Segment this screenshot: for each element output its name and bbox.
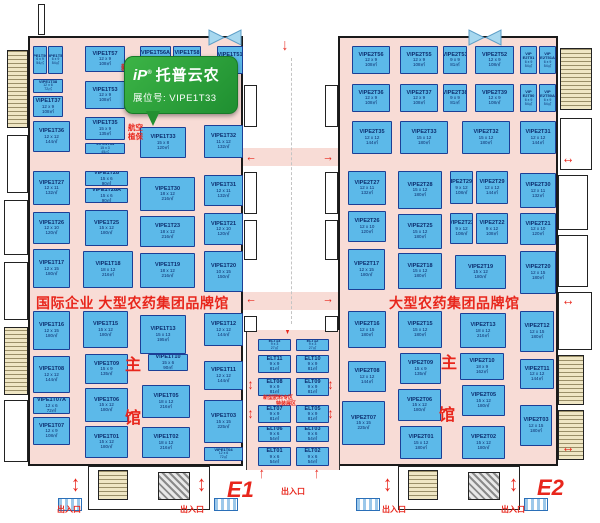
flagpole-structure xyxy=(38,4,45,35)
direction-arrow: ↕ xyxy=(328,377,334,391)
booth-vipe1t02[interactable]: VIPE1T0218 x 12216㎡ xyxy=(142,427,190,458)
booth-area-label: 108㎡ xyxy=(365,101,377,106)
direction-arrow: ↕ xyxy=(197,473,206,495)
booth-area-label: 216㎡ xyxy=(161,197,173,202)
booth-area-label: 54㎡ xyxy=(525,103,532,107)
booth-area-label: 81㎡ xyxy=(450,101,460,106)
booth-area-label: 108㎡ xyxy=(42,110,54,115)
booth-area-label: 180㎡ xyxy=(99,333,111,338)
booth-vipe2t05[interactable]: VIPE2T0515 x 12180㎡ xyxy=(462,385,505,416)
direction-arrow: ↕ xyxy=(71,473,80,495)
direction-arrow: → xyxy=(322,149,333,163)
booth-vipe1t28a[interactable]: VIPE1T28A15 x 690㎡ xyxy=(85,188,128,203)
booth-vipe2t07[interactable]: VIPE2T0715 x 15225㎡ xyxy=(342,401,385,445)
booth-vipe2t22[interactable]: VIPE2T229 x 12108㎡ xyxy=(476,213,508,244)
elt-zone-note-line2: 特装展区 xyxy=(276,400,296,407)
direction-arrow: ↔ xyxy=(562,151,575,167)
banner-booth-row: 展位号: VIPE1T33 xyxy=(133,90,231,104)
direction-arrow: ↔ xyxy=(562,293,575,309)
building-structure xyxy=(244,85,257,127)
booth-vipe1t31[interactable]: VIPE1T3112 x 11132㎡ xyxy=(204,175,243,206)
booth-vipe1t21[interactable]: VIPE1T2112 x 10120㎡ xyxy=(204,213,243,245)
booth-vipe2t01[interactable]: VIPE2T0115 x 12180㎡ xyxy=(400,426,442,459)
booth-vipe2t38[interactable]: VIPE2T389 x 981㎡ xyxy=(443,84,467,112)
booth-vipe1t28[interactable]: VIPE1T2815 x 690㎡ xyxy=(85,171,128,186)
booth-area-label: 144㎡ xyxy=(532,141,544,146)
booth-area-label: 180㎡ xyxy=(361,333,373,338)
booth-vipe1t53[interactable]: VIPE1T5312 x 9108㎡ xyxy=(85,81,125,109)
booth-vipe1t35[interactable]: VIPE1T3515 x 9135㎡ xyxy=(85,117,125,140)
booth-area-label: 216㎡ xyxy=(160,405,172,410)
booth-area-label: 108㎡ xyxy=(488,63,500,68)
booth-vipe1t37[interactable]: VIPE1T3712 x 9108㎡ xyxy=(33,96,63,117)
booth-vipe1t13[interactable]: VIPE1T1315 x 13195㎡ xyxy=(140,315,186,354)
booth-area-label: 81㎡ xyxy=(308,390,318,395)
booth-vipe2t55[interactable]: VIPE2T5512 x 9108㎡ xyxy=(400,46,438,74)
booth-vipe2t53[interactable]: VIPE2T539 x 981㎡ xyxy=(443,46,467,74)
booth-vipe2t51[interactable]: VIP E2T516 x 954㎡ xyxy=(520,46,537,74)
booth-area-label: 150㎡ xyxy=(217,275,229,280)
booth-vipe2t33[interactable]: VIPE2T3315 x 12180㎡ xyxy=(400,121,448,154)
banner-pointer-icon xyxy=(146,111,160,126)
booth-elt09[interactable]: ELT099 x 981㎡ xyxy=(296,378,329,396)
gate-marker-icon xyxy=(468,29,502,46)
booth-elt01[interactable]: ELT019 x 654㎡ xyxy=(258,447,291,466)
building-structure xyxy=(244,220,257,260)
booth-vipe2t26[interactable]: VIPE2T2612 x 10120㎡ xyxy=(348,211,386,242)
booth-area-label: 180㎡ xyxy=(414,274,426,279)
booth-area-label: 144㎡ xyxy=(531,377,543,382)
booth-area-label: 54㎡ xyxy=(544,103,551,107)
booth-vipe1t07a[interactable]: VIPE1T07A12 x 672㎡ xyxy=(33,397,70,414)
booth-vipe1t06[interactable]: VIPE1T0615 x 12180㎡ xyxy=(85,388,128,422)
booth-vipe1t19[interactable]: VIPE1T1918 x 12216㎡ xyxy=(140,253,195,288)
floor-plan-canvas: 国际企业 大型农药集团品牌馆 大型农药集团品牌馆 主 馆 主 馆 E1 E2 新… xyxy=(0,0,600,523)
booth-vipe2t19[interactable]: VIPE2T1915 x 12180㎡ xyxy=(455,255,506,289)
e2-main-hall-char-top: 主 xyxy=(441,349,457,373)
direction-arrow: ↑ xyxy=(314,466,320,481)
e2-main-hall-char-bottom: 馆 xyxy=(439,401,455,425)
booth-elt12[interactable]: ELT129 x 327㎡ xyxy=(296,339,329,351)
booth-area-label: 195㎡ xyxy=(157,338,169,343)
booth-area-label: 135㎡ xyxy=(99,132,111,137)
booth-vipe2t10[interactable]: VIPE2T1018 x 9162㎡ xyxy=(460,353,504,380)
booth-elt11[interactable]: ELT119 x 981㎡ xyxy=(258,355,291,373)
booth-vipe1t08[interactable]: VIPE1T0812 x 12144㎡ xyxy=(33,356,70,393)
e2-zone-title: 大型农药集团品牌馆 xyxy=(389,293,520,313)
stairs-structure xyxy=(4,327,28,395)
booth-area-label: 108㎡ xyxy=(99,98,111,103)
booth-area-label: 180㎡ xyxy=(477,404,489,409)
booth-area-label: 144㎡ xyxy=(366,141,378,146)
booth-vipe2t29[interactable]: VIPE2T2912 x 12144㎡ xyxy=(476,171,508,204)
booth-area-label: 216㎡ xyxy=(161,235,173,240)
booth-area-label: 81㎡ xyxy=(270,367,280,372)
gate-marker-icon xyxy=(208,29,242,46)
booth-area-label: 108㎡ xyxy=(455,191,467,196)
booth-area-label: 135㎡ xyxy=(414,372,426,377)
exit-label: 出入口 xyxy=(501,504,525,515)
building-structure xyxy=(468,472,500,500)
booth-area-label: 90㎡ xyxy=(102,199,112,203)
booth-vipe2t27[interactable]: VIPE2T2712 x 11132㎡ xyxy=(348,171,386,205)
booth-vipe1t27[interactable]: VIPE1T2712 x 11132㎡ xyxy=(33,171,70,205)
booth-vipe2t25[interactable]: VIPE2T2515 x 12180㎡ xyxy=(398,214,442,249)
booth-vipe1t04[interactable]: VIPE1T0412 x 672㎡ xyxy=(204,447,243,461)
booth-area-label: 132㎡ xyxy=(45,191,57,196)
booth-area-label: 180㎡ xyxy=(415,446,427,451)
direction-arrow: ↕ xyxy=(509,473,518,495)
booth-elt06[interactable]: ELT069 x 654㎡ xyxy=(258,426,291,442)
booth-vipe2t39[interactable]: VIPE2T3912 x 9108㎡ xyxy=(475,84,514,112)
e1-main-hall-char-bottom: 馆 xyxy=(125,404,141,428)
booth-area-label: 108㎡ xyxy=(45,434,57,439)
building-structure xyxy=(558,175,588,230)
banner-brand-row: iP® 托普云农 xyxy=(133,64,231,85)
booth-vipe2t28[interactable]: VIPE2T2815 x 12180㎡ xyxy=(398,171,442,209)
exit-label: 出入口 xyxy=(180,504,204,515)
booth-area-label: 144㎡ xyxy=(45,378,57,383)
booth-vipe2t06[interactable]: VIPE2T0615 x 12180㎡ xyxy=(398,389,441,421)
booth-area-label: 180㎡ xyxy=(530,429,542,434)
booth-vipe1t38[interactable]: VIPE1T3812 x 672㎡ xyxy=(33,79,63,93)
booth-area-label: 54㎡ xyxy=(308,437,318,442)
building-structure xyxy=(244,316,257,332)
booth-area-label: 135㎡ xyxy=(100,372,112,377)
booth-vipe1t17[interactable]: VIPE1T1712 x 15180㎡ xyxy=(33,249,70,288)
booth-area-label: 180㎡ xyxy=(360,273,372,278)
direction-arrow: ↔ xyxy=(562,440,575,456)
booth-vipe2t20[interactable]: VIPE2T2012 x 15180㎡ xyxy=(520,251,556,294)
booth-area-label: 180㎡ xyxy=(414,235,426,240)
direction-arrow: ↑ xyxy=(259,466,265,481)
booth-vipe2t03[interactable]: VIPE2T0312 x 15180㎡ xyxy=(520,405,552,446)
building-structure xyxy=(325,220,338,260)
booth-vipe2t16[interactable]: VIPE2T1612 x 15180㎡ xyxy=(348,311,386,348)
booth-vipe1t18[interactable]: VIPE1T1818 x 12216㎡ xyxy=(83,251,133,288)
direction-arrow: ↕ xyxy=(383,473,392,495)
building-structure xyxy=(4,400,28,462)
booth-vipe2t13[interactable]: VIPE2T1318 x 12216㎡ xyxy=(460,313,506,348)
direction-arrow: → xyxy=(322,291,333,305)
booth-vipe1t50[interactable]: VIPE1T506 x 954㎡ xyxy=(48,46,63,74)
booth-area-label: 54㎡ xyxy=(525,65,532,69)
booth-area-label: 108㎡ xyxy=(365,63,377,68)
hall-label-e1: E1 xyxy=(227,477,254,503)
building-structure xyxy=(244,172,257,214)
booth-vipe1t57[interactable]: VIPE1T5712 x 9108㎡ xyxy=(85,46,125,72)
booth-area-label: 120㎡ xyxy=(532,232,544,237)
booth-vipe2t15[interactable]: VIPE2T1515 x 12180㎡ xyxy=(398,311,442,348)
topcloud-logo-icon: iP® xyxy=(133,67,152,84)
booth-vipe2t08[interactable]: VIPE2T0812 x 12144㎡ xyxy=(348,361,386,392)
booth-vipe1t36[interactable]: VIPE1T3612 x 12144㎡ xyxy=(33,121,70,152)
building-structure xyxy=(4,200,28,255)
booth-area-label: 108㎡ xyxy=(413,101,425,106)
booth-vipe1t33[interactable]: VIPE1T3315 x 8120㎡ xyxy=(140,127,186,158)
booth-elt02[interactable]: ELT029 x 654㎡ xyxy=(296,447,329,466)
booth-area-label: 225㎡ xyxy=(217,425,229,430)
building-structure xyxy=(558,235,588,287)
booth-vipe1t07[interactable]: VIPE1T0712 x 9108㎡ xyxy=(33,417,70,445)
booth-elt13[interactable]: ELT139 x 327㎡ xyxy=(258,339,291,351)
booth-area-label: 216㎡ xyxy=(160,446,172,451)
booth-area-label: 180㎡ xyxy=(418,141,430,146)
booth-vipe2t32[interactable]: VIPE2T3215 x 12180㎡ xyxy=(462,121,510,154)
booth-area-label: 81㎡ xyxy=(308,417,318,422)
booth-vipe1t15[interactable]: VIPE1T1515 x 12180㎡ xyxy=(83,311,128,348)
booth-area-label: 45㎡ xyxy=(101,151,108,154)
banner-booth-number: VIPE1T33 xyxy=(169,93,216,104)
booth-vipe1t01[interactable]: VIPE1T0115 x 12180㎡ xyxy=(85,426,128,458)
booth-area-label: 144㎡ xyxy=(361,380,373,385)
booth-vipe2t52[interactable]: VIPE2T5212 x 9108㎡ xyxy=(475,46,514,74)
booth-vipe1t05[interactable]: VIPE1T0518 x 12216㎡ xyxy=(142,385,190,418)
direction-arrow: ↕ xyxy=(328,406,334,420)
booth-area-label: 72㎡ xyxy=(220,456,227,460)
booth-vipe1t09[interactable]: VIPE1T0915 x 9135㎡ xyxy=(85,354,128,384)
booth-area-label: 120㎡ xyxy=(45,231,57,236)
booth-area-label: 108㎡ xyxy=(488,101,500,106)
booth-area-label: 108㎡ xyxy=(99,62,111,67)
booth-elt10[interactable]: ELT109 x 981㎡ xyxy=(296,355,329,373)
booth-area-label: 180㎡ xyxy=(414,193,426,198)
stairs-structure xyxy=(558,355,584,405)
exit-label: 出入口 xyxy=(57,504,81,515)
e1-main-hall-char-top: 主 xyxy=(125,351,141,375)
booth-vipe1t26[interactable]: VIPE1T2612 x 10120㎡ xyxy=(33,212,70,244)
booth-elt05[interactable]: ELT059 x 981㎡ xyxy=(296,405,329,423)
booth-area-label: 90㎡ xyxy=(102,182,112,186)
e1-zone-title: 国际企业 大型农药集团品牌馆 xyxy=(36,293,229,313)
booth-area-label: 108㎡ xyxy=(455,232,467,237)
booth-vipe2t30[interactable]: VIPE2T3012 x 11132㎡ xyxy=(520,173,556,208)
booth-area-label: 216㎡ xyxy=(102,273,114,278)
booth-area-label: 54㎡ xyxy=(270,437,280,442)
booth-area-label: 54㎡ xyxy=(52,62,59,66)
booth-area-label: 132㎡ xyxy=(361,191,373,196)
booth-area-label: 144㎡ xyxy=(217,379,229,384)
booth-area-label: 81㎡ xyxy=(270,417,280,422)
booth-vipe1t12[interactable]: VIPE1T1212 x 12144㎡ xyxy=(204,313,243,346)
building-structure xyxy=(7,135,28,193)
booth-area-label: 180㎡ xyxy=(474,275,486,280)
booth-vipe2t12[interactable]: VIPE2T1212 x 15180㎡ xyxy=(520,311,554,352)
direction-arrow: ↕ xyxy=(248,406,254,420)
booth-area-label: 180㎡ xyxy=(100,445,112,450)
booth-vipe1t25[interactable]: VIPE1T2515 x 12180㎡ xyxy=(85,210,128,246)
booth-vipe1t11[interactable]: VIPE1T1112 x 12144㎡ xyxy=(204,361,243,390)
booth-area-label: 180㎡ xyxy=(531,335,543,340)
stairs-structure xyxy=(560,48,592,110)
booth-area-label: 180㎡ xyxy=(45,334,57,339)
booth-vipe1t16[interactable]: VIPE1T1612 x 15180㎡ xyxy=(33,311,70,350)
booth-area-label: 144㎡ xyxy=(45,140,57,145)
booth-area-label: 180㎡ xyxy=(414,333,426,338)
booth-area-label: 120㎡ xyxy=(361,230,373,235)
booth-area-label: 81㎡ xyxy=(308,367,318,372)
banner-booth-label: 展位号: xyxy=(133,93,166,104)
booth-vipe2t17[interactable]: VIPE2T1712 x 15180㎡ xyxy=(348,249,385,290)
booth-area-label: 120㎡ xyxy=(157,146,169,151)
booth-area-label: 54㎡ xyxy=(308,460,318,465)
booth-vipe2t29a[interactable]: VIPE2T29A9 x 12108㎡ xyxy=(450,171,473,204)
booth-area-label: 216㎡ xyxy=(161,274,173,279)
exhibitor-banner: iP® 托普云农 展位号: VIPE1T33 xyxy=(124,56,238,114)
booth-vipe2t09[interactable]: VIPE2T0915 x 9135㎡ xyxy=(400,353,441,384)
booth-vipe2t56[interactable]: VIPE2T5612 x 9108㎡ xyxy=(352,46,390,74)
stairs-structure xyxy=(408,470,438,500)
booth-vipe1t50a[interactable]: VIPE1T50A6 x 954㎡ xyxy=(33,46,47,74)
booth-area-label: 180㎡ xyxy=(100,408,112,413)
exit-label: 出入口 xyxy=(382,504,406,515)
corridor-center-line xyxy=(291,58,292,324)
direction-arrow: ↕ xyxy=(248,377,254,391)
booth-area-label: 90㎡ xyxy=(163,366,173,371)
building-structure xyxy=(158,472,190,500)
booth-vipe1t10[interactable]: VIPE1T1015 x 690㎡ xyxy=(148,354,188,371)
booth-area-label: 108㎡ xyxy=(413,63,425,68)
booth-vipe1t30[interactable]: VIPE1T3018 x 12216㎡ xyxy=(140,177,195,211)
booth-area-label: 180㎡ xyxy=(413,408,425,413)
building-structure xyxy=(325,316,338,332)
booth-vipe1t20[interactable]: VIPE1T2010 x 15150㎡ xyxy=(204,251,243,292)
booth-vipe2t51a[interactable]: VIP E2T51A6 x 954㎡ xyxy=(539,46,556,74)
booth-vipe2t50[interactable]: VIP E2T506 x 954㎡ xyxy=(520,84,537,112)
booth-vipe1t32[interactable]: VIPE1T3211 x 12132㎡ xyxy=(204,125,243,158)
booth-vipe2t11[interactable]: VIPE2T1112 x 12144㎡ xyxy=(520,359,554,389)
booth-vipe2t36[interactable]: VIPE2T3612 x 9108㎡ xyxy=(352,84,390,112)
booth-area-label: 180㎡ xyxy=(477,446,489,451)
booth-area-label: 180㎡ xyxy=(480,141,492,146)
booth-area-label: 216㎡ xyxy=(477,334,489,339)
booth-area-label: 132㎡ xyxy=(217,145,229,150)
direction-arrow: ← xyxy=(245,291,256,305)
banner-brand-name: 托普云农 xyxy=(156,64,220,85)
booth-area-label: 54㎡ xyxy=(544,65,551,69)
direction-arrow: ▼ xyxy=(285,329,291,336)
booth-vipe2t18[interactable]: VIPE2T1815 x 12180㎡ xyxy=(398,253,442,289)
booth-area-label: 108㎡ xyxy=(486,232,498,237)
booth-area-label: 120㎡ xyxy=(217,232,229,237)
booth-vipe1t34[interactable]: VIPE1T3415 x 345㎡ xyxy=(85,143,125,154)
booth-area-label: 180㎡ xyxy=(45,272,57,277)
booth-vipe2t02[interactable]: VIPE2T0215 x 12180㎡ xyxy=(462,426,505,459)
hall-label-e2: E2 xyxy=(537,475,564,501)
stairs-structure xyxy=(98,470,128,500)
booth-vipe1t23[interactable]: VIPE1T2318 x 12216㎡ xyxy=(140,216,195,247)
building-structure xyxy=(4,262,28,320)
building-structure xyxy=(325,85,338,127)
building-structure xyxy=(325,172,338,214)
booth-area-label: 54㎡ xyxy=(36,62,43,66)
booth-vipe2t23[interactable]: VIPE2T239 x 12108㎡ xyxy=(450,213,473,244)
booth-area-label: 27㎡ xyxy=(271,347,278,351)
service-box-structure xyxy=(356,498,380,511)
booth-area-label: 132㎡ xyxy=(217,194,229,199)
direction-arrow: ↓ xyxy=(282,38,288,54)
booth-vipe1t03[interactable]: VIPE1T0315 x 15225㎡ xyxy=(204,400,243,443)
booth-area-label: 180㎡ xyxy=(100,231,112,236)
aviation-note-line2: 植保 xyxy=(128,131,143,142)
booth-elt07[interactable]: ELT079 x 981㎡ xyxy=(258,405,291,423)
booth-vipe2t35[interactable]: VIPE2T3512 x 12144㎡ xyxy=(352,121,392,154)
booth-vipe2t21[interactable]: VIPE2T2112 x 10120㎡ xyxy=(520,213,556,245)
booth-area-label: 180㎡ xyxy=(532,276,544,281)
direction-arrow: ← xyxy=(245,149,256,163)
booth-vipe2t31[interactable]: VIPE2T3112 x 12144㎡ xyxy=(520,121,556,154)
booth-vipe2t50a[interactable]: VIP E2T50A6 x 954㎡ xyxy=(539,84,556,112)
booth-area-label: 144㎡ xyxy=(486,191,498,196)
booth-area-label: 132㎡ xyxy=(532,194,544,199)
exit-label: 出入口 xyxy=(281,486,305,497)
stairs-structure xyxy=(7,50,28,128)
booth-vipe2t37[interactable]: VIPE2T3712 x 9108㎡ xyxy=(400,84,438,112)
booth-area-label: 54㎡ xyxy=(270,460,280,465)
booth-elt03[interactable]: ELT039 x 654㎡ xyxy=(296,426,329,442)
booth-area-label: 162㎡ xyxy=(476,370,488,375)
booth-area-label: 72㎡ xyxy=(47,409,57,414)
booth-area-label: 81㎡ xyxy=(450,63,460,68)
booth-area-label: 72㎡ xyxy=(44,88,51,92)
booth-area-label: 144㎡ xyxy=(217,333,229,338)
booth-area-label: 27㎡ xyxy=(309,347,316,351)
booth-area-label: 225㎡ xyxy=(357,426,369,431)
